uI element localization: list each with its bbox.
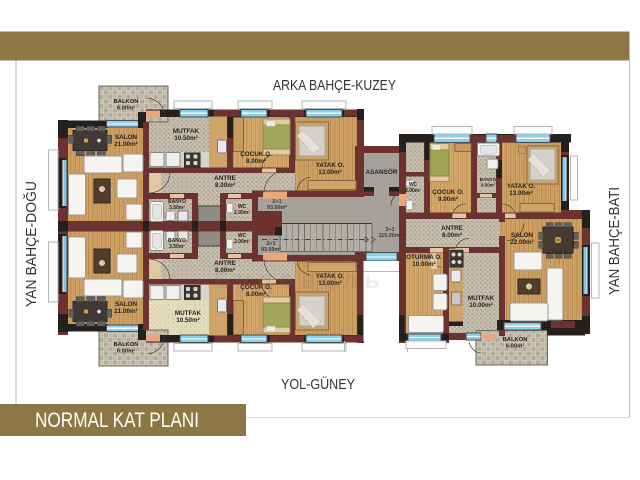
svg-text:2.00m²: 2.00m² (405, 188, 421, 194)
svg-text:2.00m²: 2.00m² (234, 210, 250, 216)
svg-text:NORMAL KAT PLANI: NORMAL KAT PLANI (35, 409, 199, 432)
svg-text:8.00m²: 8.00m² (246, 158, 266, 165)
svg-text:2+1: 2+1 (266, 241, 275, 247)
svg-text:ÇOCUK O.: ÇOCUK O. (240, 151, 272, 158)
svg-text:SALON: SALON (115, 134, 137, 141)
svg-text:ÇOCUK O.: ÇOCUK O. (432, 189, 464, 196)
svg-text:YAN BAHÇE-DOĞU: YAN BAHÇE-DOĞU (23, 181, 40, 307)
svg-text:6.00m²: 6.00m² (117, 105, 135, 112)
svg-text:21.00m²: 21.00m² (114, 141, 137, 148)
svg-text:3.50m²: 3.50m² (169, 244, 185, 250)
svg-text:2+1: 2+1 (272, 199, 281, 205)
svg-text:3.50m²: 3.50m² (481, 182, 496, 187)
svg-text:8.00m²: 8.00m² (215, 182, 235, 189)
svg-text:YAN BAHÇE-BATI: YAN BAHÇE-BATI (607, 187, 623, 295)
svg-text:ASANSÖR: ASANSÖR (366, 167, 398, 176)
svg-text:ANTRE: ANTRE (441, 225, 463, 232)
svg-text:Будовель: Будовель (213, 267, 386, 294)
svg-text:115.00m²: 115.00m² (379, 233, 402, 239)
svg-text:3.50m²: 3.50m² (169, 205, 185, 211)
svg-text:3+1: 3+1 (385, 227, 394, 233)
svg-text:8.00m²: 8.00m² (442, 232, 462, 239)
svg-text:YOL-GÜNEY: YOL-GÜNEY (281, 375, 355, 393)
svg-text:BALKON: BALKON (503, 337, 528, 343)
svg-text:YATAK O.: YATAK O. (316, 162, 345, 169)
svg-text:10.50m²: 10.50m² (174, 135, 197, 142)
svg-text:ANTRE: ANTRE (214, 260, 236, 267)
svg-text:93.00m²: 93.00m² (261, 247, 281, 253)
svg-text:SALON: SALON (511, 232, 533, 239)
svg-text:MUTFAK: MUTFAK (175, 310, 202, 317)
svg-text:6.00m²: 6.00m² (117, 348, 135, 355)
svg-text:13.00m²: 13.00m² (318, 169, 341, 176)
svg-text:93.00m²: 93.00m² (267, 205, 287, 211)
svg-text:21.00m²: 21.00m² (114, 308, 137, 315)
svg-text:9.00m²: 9.00m² (438, 196, 458, 203)
svg-text:BALKON: BALKON (114, 99, 139, 105)
svg-text:BALKON: BALKON (114, 342, 139, 348)
svg-text:YATAK O.: YATAK O. (507, 183, 536, 190)
svg-text:13.00m²: 13.00m² (509, 190, 532, 197)
svg-text:10.00m²: 10.00m² (469, 302, 492, 309)
svg-text:BANYO: BANYO (480, 177, 497, 182)
svg-text:10.00m²: 10.00m² (412, 261, 435, 268)
svg-text:22.00m²: 22.00m² (510, 239, 533, 246)
svg-text:SALON: SALON (115, 301, 137, 308)
svg-text:2.00m²: 2.00m² (234, 239, 250, 245)
svg-text:MUTFAK: MUTFAK (173, 128, 200, 135)
svg-text:MUTFAK: MUTFAK (468, 295, 495, 302)
svg-text:ANTRE: ANTRE (214, 175, 236, 182)
svg-text:ARKA BAHÇE-KUZEY: ARKA BAHÇE-KUZEY (273, 78, 396, 94)
svg-text:OTURMA O.: OTURMA O. (406, 254, 442, 261)
svg-text:6.00m²: 6.00m² (506, 343, 524, 350)
svg-text:10.50m²: 10.50m² (176, 317, 199, 324)
